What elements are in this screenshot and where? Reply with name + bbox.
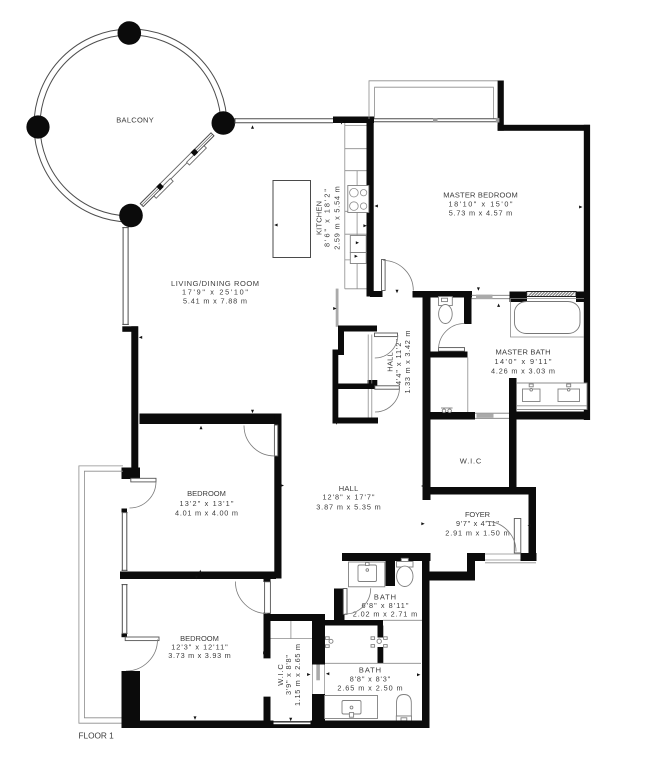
svg-text:2.59 m x 5.54 m: 2.59 m x 5.54 m: [333, 186, 342, 250]
svg-text:3.87 m x 5.35 m: 3.87 m x 5.35 m: [316, 502, 381, 511]
svg-text:2.91 m x 1.50 m: 2.91 m x 1.50 m: [445, 528, 509, 537]
svg-text:BEDROOM: BEDROOM: [187, 489, 226, 498]
svg-text:5.41 m x 7.88 m: 5.41 m x 7.88 m: [183, 297, 247, 306]
svg-text:1.15 m x 2.65 m: 1.15 m x 2.65 m: [293, 644, 302, 706]
svg-text:BATH: BATH: [359, 666, 381, 675]
svg-text:4.01 m x 4.00 m: 4.01 m x 4.00 m: [175, 509, 238, 518]
svg-text:W.I.C: W.I.C: [460, 457, 482, 466]
svg-text:8'6" x 18'2": 8'6" x 18'2": [323, 189, 332, 247]
svg-text:8'8" x 8'3": 8'8" x 8'3": [350, 675, 391, 684]
svg-text:1.33 m x 3.42 m: 1.33 m x 3.42 m: [403, 331, 412, 394]
svg-text:4.26 m x 3.03 m: 4.26 m x 3.03 m: [491, 367, 555, 376]
svg-text:FLOOR 1: FLOOR 1: [79, 731, 115, 741]
svg-text:5.73 m x 4.57 m: 5.73 m x 4.57 m: [449, 209, 513, 218]
svg-text:MASTER BATH: MASTER BATH: [496, 348, 551, 357]
svg-text:3.73 m x 3.93 m: 3.73 m x 3.93 m: [168, 651, 231, 660]
svg-text:2.02 m x 2.71 m: 2.02 m x 2.71 m: [353, 610, 417, 619]
svg-text:FOYER: FOYER: [465, 510, 491, 519]
svg-text:9'7" x 4'11": 9'7" x 4'11": [456, 519, 499, 528]
svg-text:14'0" x 9'11": 14'0" x 9'11": [495, 357, 552, 366]
svg-text:2.65 m x 2.50 m: 2.65 m x 2.50 m: [337, 684, 402, 693]
svg-text:13'2" x 13'1": 13'2" x 13'1": [180, 499, 234, 508]
svg-text:BALCONY: BALCONY: [116, 116, 154, 125]
svg-text:12'8" x 17'7": 12'8" x 17'7": [323, 493, 375, 502]
svg-text:MASTER BEDROOM: MASTER BEDROOM: [443, 191, 518, 200]
svg-text:3'9" x 8'8": 3'9" x 8'8": [284, 655, 293, 695]
